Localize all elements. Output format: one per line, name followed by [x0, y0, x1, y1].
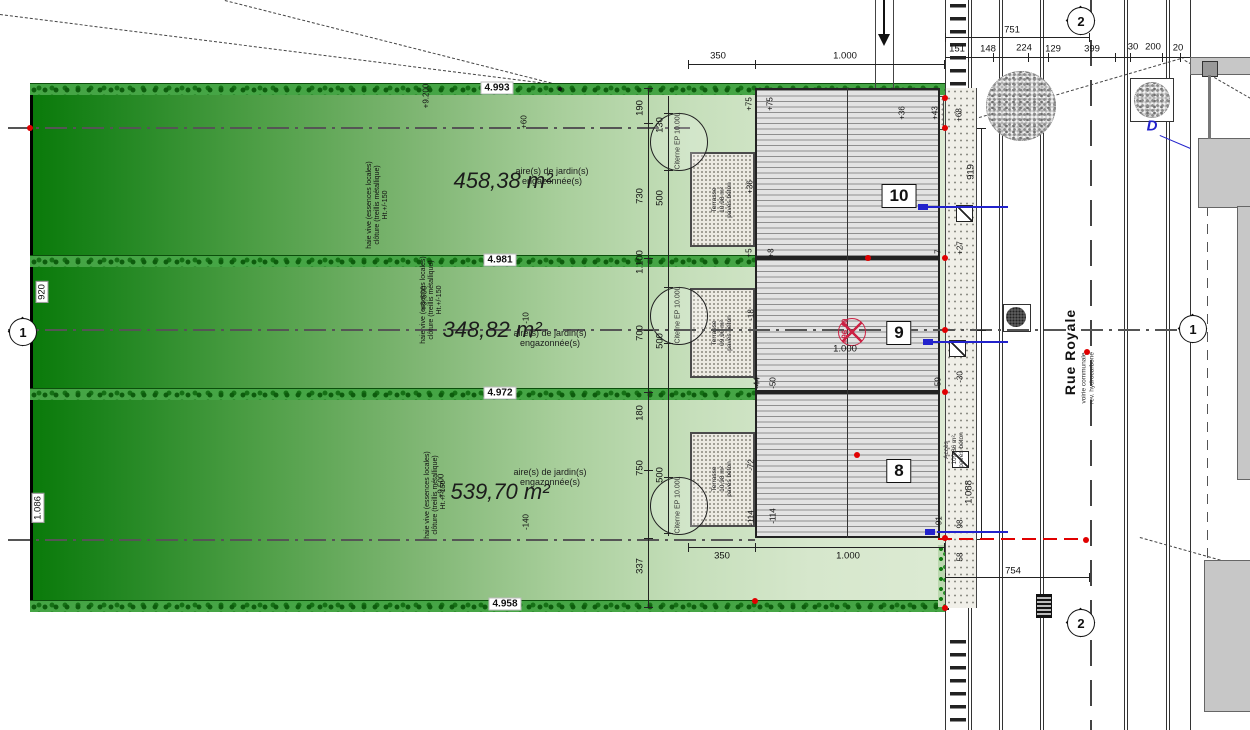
dim-line-vertical: [981, 128, 982, 540]
dimension-label: 30: [1128, 42, 1139, 53]
dim-line-vertical: [648, 88, 649, 608]
survey-point: [942, 535, 948, 541]
dim-line: [945, 37, 1090, 38]
hedge-divider-2: [30, 388, 755, 400]
boundary-dash-diagonal: [225, 0, 557, 85]
dim-line: [945, 577, 1090, 578]
tree-symbol: [986, 71, 1056, 141]
survey-point: [942, 605, 948, 611]
survey-point: [752, 598, 758, 604]
grid-marker-2-top: 2: [1067, 7, 1093, 33]
existing-building: [1204, 560, 1250, 712]
blue-connector-line: [937, 531, 1008, 533]
existing-building: [1190, 57, 1250, 75]
blue-connector-line: [933, 341, 1008, 343]
survey-point: [1084, 349, 1090, 355]
axis-line-unit8: [8, 539, 755, 541]
street-surface-note: voirie communalerev. hydrocarboné: [1081, 352, 1096, 404]
hedge-divider-1: [30, 255, 755, 267]
road-line: [1127, 0, 1128, 730]
axis-line-red: [938, 538, 1086, 540]
parcel-note-3: aire(s) de jardin(s)engazonnée(s): [513, 467, 586, 487]
grid-marker-1-left: 1: [9, 318, 35, 344]
dimension-label: 224: [1016, 43, 1032, 54]
blue-connector: [918, 204, 928, 210]
axis-line-unit9: [8, 329, 1185, 331]
edge-dim-left-top: 920: [36, 281, 49, 303]
survey-point: [942, 327, 948, 333]
parking-ticks: [950, 640, 966, 728]
dim-line: [688, 64, 945, 65]
sidewalk-line: [1190, 0, 1191, 730]
tree-symbol: [1006, 307, 1026, 327]
hedge-note: haie vive (essences locales)clôture (tre…: [366, 161, 390, 249]
dimension-label: 1.000: [833, 51, 857, 62]
hedge-dim-label: 4.972: [483, 387, 516, 400]
blue-connector: [923, 339, 933, 345]
terrace-label: Terrasse09,90 m²pavés béton: [711, 315, 734, 350]
terrace-label: Terrasse10,98 m²pavés béton: [711, 461, 734, 496]
drain-grate: [1036, 594, 1052, 618]
boundary-dash-line: [1207, 170, 1208, 560]
boundary-dash-diagonal: [0, 14, 556, 85]
cistern-label: Citerne EP 10.00L: [675, 476, 682, 533]
survey-point: [865, 255, 871, 261]
street-name: Rue Royale: [1062, 309, 1078, 395]
blue-connector: [925, 529, 935, 535]
entrance-arrow-shaft: [883, 0, 885, 36]
survey-point: [854, 452, 860, 458]
survey-point: [942, 125, 948, 131]
tree-symbol: [1134, 82, 1170, 118]
existing-building: [1237, 206, 1250, 480]
building-centerline: [847, 88, 848, 538]
level-mark-value: +96.40: [841, 319, 850, 344]
dim-line: [688, 547, 945, 548]
unit-number-8: 8: [886, 459, 911, 483]
cistern-label: Citerne EP 10.00L: [675, 112, 682, 169]
dimension-label: 754: [1005, 566, 1021, 577]
dim-line: [945, 57, 1190, 58]
blue-connector-line: [928, 206, 1008, 208]
axis-line-unit10: [8, 127, 690, 129]
dim-line-vertical: [668, 96, 669, 536]
unit-number-9: 9: [886, 321, 911, 345]
blue-label-d: D: [1147, 118, 1158, 135]
dimension-label: 751: [1004, 25, 1020, 36]
road-edge-line: [945, 0, 946, 88]
dimension-label: 350: [710, 51, 726, 62]
tree-planter: [1130, 78, 1174, 122]
level-mark-dim: 1.000: [833, 344, 857, 355]
road-edge-line: [945, 608, 946, 730]
blue-leader-line: [1160, 135, 1191, 149]
cistern-label: Citerne EP 10.00L: [675, 286, 682, 343]
road-line: [1124, 0, 1125, 730]
parcel-note-1: aire(s) de jardin(s)engazonnée(s): [515, 166, 588, 186]
hedge-dim-label: 4.958: [488, 598, 521, 611]
grid-marker-1-right: 1: [1179, 315, 1205, 341]
survey-point: [942, 95, 948, 101]
entrance-arrow-head: [878, 34, 890, 46]
entrance-line: [893, 0, 894, 88]
unit-number-10: 10: [882, 184, 917, 208]
terrace-label: Terrasse10,98 m²pavés béton: [711, 182, 734, 217]
site-plan-drawing: Terrasse10,98 m²pavés béton Terrasse09,9…: [0, 0, 1250, 730]
survey-point: [942, 389, 948, 395]
dimension-label: 20: [1173, 43, 1184, 54]
pole-stem: [1208, 75, 1211, 139]
survey-point: [1083, 537, 1089, 543]
survey-point: [27, 125, 33, 131]
entrance-line: [875, 0, 876, 88]
grid-marker-2-bottom: 2: [1067, 609, 1093, 635]
existing-building: [1198, 138, 1250, 208]
parcel-note-2: aire(s) de jardin(s)engazonnée(s): [513, 328, 586, 348]
dimension-label: 200: [1145, 42, 1161, 53]
survey-point: [942, 255, 948, 261]
survey-point-black: [558, 87, 562, 91]
access-note: Accès109,86 m²pavés béton: [943, 432, 966, 467]
edge-dim-left-bottom: 1.086: [32, 493, 45, 523]
hedge-dim-label: 4.993: [480, 82, 513, 95]
hedge-note: haie vive (essences locales)clôture (tre…: [424, 451, 448, 539]
tree-planter: [1003, 304, 1031, 332]
hedge-note: haie vive (essences locales)clôture (tre…: [420, 256, 444, 344]
dimension-label: 399: [1084, 44, 1100, 55]
hedge-dim-label: 4.981: [483, 254, 516, 267]
